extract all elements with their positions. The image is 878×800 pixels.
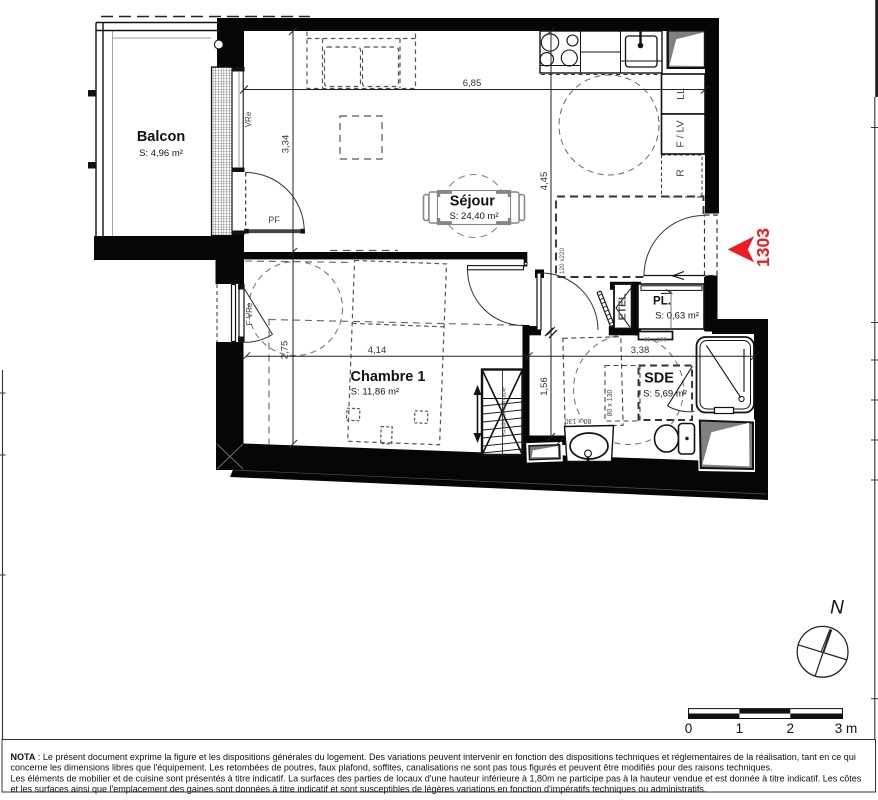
svg-text:S: 0,63 m²: S: 0,63 m² [655, 311, 699, 322]
svg-text:N: N [830, 598, 844, 619]
svg-text:3,34: 3,34 [281, 135, 292, 154]
svg-text:S: 24,40 m²: S: 24,40 m² [449, 211, 498, 222]
svg-text:Séjour: Séjour [450, 194, 495, 210]
svg-text:Balcon: Balcon [137, 129, 185, 145]
svg-text:ETEL: ETEL [617, 293, 629, 320]
svg-text:4,45: 4,45 [539, 172, 550, 191]
svg-text:120 x220: 120 x220 [559, 248, 566, 274]
svg-text:1: 1 [736, 721, 744, 736]
svg-text:escalier démontable: escalier démontable [502, 387, 508, 437]
svg-text:LL: LL [675, 88, 687, 100]
svg-text:0: 0 [685, 721, 693, 736]
svg-text:3 m: 3 m [835, 721, 858, 736]
svg-text:Les éléments de mobilier et de: Les éléments de mobilier et de cuisine s… [11, 773, 862, 783]
svg-text:S: 4,96 m²: S: 4,96 m² [139, 148, 183, 159]
svg-text:PF: PF [268, 215, 280, 225]
svg-text:concerne les dimensions libres: concerne les dimensions libres que l'équ… [11, 763, 773, 773]
svg-text:R: R [675, 169, 687, 177]
svg-text:3,38: 3,38 [631, 345, 650, 356]
svg-text:80 x 130: 80 x 130 [564, 417, 591, 424]
svg-text:F VRe: F VRe [245, 302, 254, 325]
svg-text:6,85: 6,85 [463, 78, 482, 89]
svg-text:et les surfaces ainsi que l'em: et les surfaces ainsi que l'emplacement … [11, 784, 707, 794]
svg-text:F / LV: F / LV [675, 120, 687, 147]
svg-text:2,75: 2,75 [280, 341, 291, 360]
svg-text:S: 5,69 m²: S: 5,69 m² [643, 389, 687, 400]
svg-text:2: 2 [787, 721, 795, 736]
svg-text:VRe: VRe [244, 111, 253, 127]
svg-text:80 x 130: 80 x 130 [607, 389, 614, 416]
svg-text:SDE: SDE [644, 371, 674, 387]
svg-text:PL.: PL. [653, 296, 671, 308]
svg-text:NOTA : Le présent document exp: NOTA : Le présent document exprime la fi… [11, 752, 856, 762]
svg-text:1,56: 1,56 [539, 377, 550, 396]
svg-text:1303: 1303 [753, 228, 773, 267]
svg-text:S: 11,86 m²: S: 11,86 m² [351, 387, 399, 398]
svg-text:Chambre 1: Chambre 1 [351, 369, 426, 385]
svg-text:4,14: 4,14 [368, 345, 387, 356]
svg-text:65 x 190: 65 x 190 [644, 338, 668, 344]
